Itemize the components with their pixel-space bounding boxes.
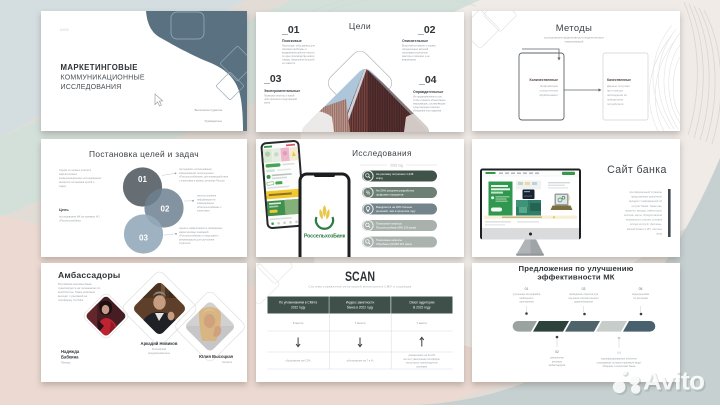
svg-text:Одним из первых этапов в: Одним из первых этапов в (59, 168, 92, 172)
svg-text:ипотека, карты. Предоставлена: ипотека, карты. Предоставлена (624, 213, 663, 217)
svg-text:при помощи: при помощи (607, 89, 623, 93)
svg-text:Российский: Российский (152, 347, 167, 351)
svg-text:связи: связи (264, 102, 271, 105)
svg-text:обогатившие на 7 в %: обогатившие на 7 в % (347, 359, 374, 363)
svg-text:исходя из групп: физлицы,: исходя из групп: физлицы, (630, 222, 662, 226)
svg-text:Россельхозбанк (845 105 раза): Россельхозбанк (845 105 раза) (376, 226, 416, 230)
svg-text:Певица: Певица (61, 361, 71, 365)
svg-text:7 место: 7 место (416, 321, 427, 325)
svg-text:стратегии: стратегии (179, 242, 191, 245)
svg-text:маркетинговых кампаний: маркетинговых кампаний (179, 231, 209, 234)
svg-text:маркетинговых: маркетинговых (59, 173, 78, 176)
svg-text:Оправдательные: Оправдательные (413, 90, 443, 94)
svg-text:решений, чем в прошлом году: решений, чем в прошлом году (376, 209, 416, 213)
svg-text:ИССЛЕДОВАНИЯ: ИССЛЕДОВАНИЯ (61, 84, 122, 91)
svg-text:Система управления репутацией: Система управления репутацией мониторинг… (308, 285, 411, 289)
svg-text:коммуникационных исследованиях: коммуникационных исследованиях (59, 177, 102, 180)
svg-text:Охват аудитории: Охват аудитории (409, 301, 434, 305)
svg-text:МАРКЕТИНГОВЫЕ: МАРКЕТИНГОВЫЕ (61, 63, 138, 72)
svg-text:Аркадий Новиков: Аркадий Новиков (141, 341, 178, 346)
svg-text:реклама: реклама (417, 365, 428, 368)
svg-text:информации на: информации на (197, 198, 216, 201)
svg-text:01: 01 (138, 175, 147, 184)
svg-text:выходит с рекламой на: выходит с рекламой на (58, 294, 88, 298)
svg-text:транслируется на телеканалах п: транслируется на телеканалах по (58, 287, 101, 290)
svg-text:Российская реклама банка: Российская реклама банка (58, 282, 92, 286)
svg-text:Поисковые: Поисковые (282, 39, 302, 43)
svg-text:Количественные: Количественные (530, 78, 559, 82)
svg-text:04: 04 (617, 351, 621, 355)
svg-text:уменьшение на 41,6%: уменьшение на 41,6% (408, 353, 435, 357)
svg-text:улучшение интерфейса: улучшение интерфейса (513, 293, 541, 296)
svg-text:Данные получают: Данные получают (607, 84, 631, 88)
svg-text:исследование МК на примере АО: исследование МК на примере АО (59, 215, 100, 219)
svg-text:2022 год: 2022 год (390, 163, 403, 167)
svg-text:_04: _04 (418, 74, 437, 86)
svg-text:предприниматель: предприниматель (148, 352, 171, 355)
svg-text:платформу YouTube: платформу YouTube (58, 298, 84, 302)
svg-text:эффективности МК: эффективности МК (537, 273, 614, 282)
svg-text:6 место: 6 место (293, 321, 304, 325)
svg-text:В 2022 году: В 2022 году (413, 305, 431, 309)
svg-text:банка в 2022 году: банка в 2022 году (347, 305, 374, 309)
svg-text:исследовать использование: исследовать использование (179, 168, 212, 171)
svg-text:Бабкина: Бабкина (61, 354, 79, 359)
svg-text:услугах банка. Также как,: услугах банка. Также как, (631, 204, 662, 208)
svg-text:«Россельхозбанком» для взаимод: «Россельхозбанком» для взаимодействия (179, 176, 229, 179)
svg-text:удовлетворения: удовлетворения (574, 301, 593, 304)
svg-text:коммуникаций: коммуникаций (565, 40, 584, 44)
svg-text:Цели: Цели (349, 21, 371, 31)
svg-text:убеждения или суждения: убеждения или суждения (413, 110, 442, 113)
svg-text:кредиты, вклады, инвестиции,: кредиты, вклады, инвестиции, (626, 209, 663, 212)
svg-text:Предложения по улучшению: Предложения по улучшению (519, 264, 634, 273)
svg-text:SCAN: SCAN (345, 269, 375, 284)
svg-text:01: 01 (525, 287, 529, 291)
svg-text:изучить влияние: изучить влияние (197, 195, 217, 198)
svg-text:коммуникации: коммуникации (197, 202, 214, 205)
svg-text:статистически: статистически (540, 89, 559, 93)
svg-text:Цель: Цель (59, 208, 69, 212)
svg-text:возможность изучать условия: возможность изучать условия (626, 219, 663, 222)
svg-text:Качественные: Качественные (607, 78, 631, 82)
svg-text:КОММУНИКАЦИОННЫЕ: КОММУНИКАЦИОННЫЕ (61, 75, 145, 82)
svg-text:Методы: Методы (556, 22, 593, 33)
svg-text:Avito: Avito (643, 366, 705, 396)
svg-text:РоссельхозБанк: РоссельхозБанк (304, 234, 346, 240)
svg-text:«Россельхозбанк»: «Россельхозбанк» (59, 219, 82, 223)
svg-text:с клиентами в разных регионах: с клиентами в разных регионах России (179, 179, 225, 182)
svg-text:ооо: ооо (60, 27, 69, 32)
svg-text:поведением: поведением (607, 98, 623, 102)
svg-text:Руководитель: Руководитель (205, 119, 223, 123)
svg-text:амбассадоров: амбассадоров (549, 364, 566, 367)
svg-text:наблюдения за: наблюдения за (607, 93, 627, 97)
svg-text:на которых транслируется: на которых транслируется (406, 362, 438, 365)
svg-text:его самости: его самости (282, 62, 296, 65)
svg-text:По упоминаниям в СМИ в: По упоминаниям в СМИ в (279, 301, 318, 305)
svg-text:рекламы: рекламы (552, 360, 562, 363)
svg-text:сбросившие на 0,3%: сбросившие на 0,3% (286, 359, 312, 363)
svg-text:Сбербанк (29 903 115 раза): Сбербанк (29 903 115 раза) (376, 242, 412, 246)
svg-text:03: 03 (582, 287, 586, 291)
svg-text:проведение опросов для: проведение опросов для (569, 293, 599, 296)
svg-text:«Россельхозбанка» с: «Россельхозбанка» с (197, 206, 222, 209)
svg-text:цифровых продуктов: цифровых продуктов (376, 193, 404, 197)
svg-text:мобильного: мобильного (520, 297, 534, 300)
svg-text:_01: _01 (281, 24, 300, 36)
svg-text:является постановка целей и: является постановка целей и (59, 180, 95, 184)
svg-text:%: % (366, 190, 371, 196)
svg-text:за счет увеличения платформ,: за счет увеличения платформ, (403, 357, 440, 361)
svg-text:2022 году: 2022 году (291, 305, 306, 309)
svg-text:видеореклама: видеореклама (632, 293, 649, 296)
svg-text:взаимосвязь: взаимосвязь (402, 59, 417, 62)
svg-text:увеличение: увеличение (550, 357, 564, 360)
svg-text:всей России. Также компания: всей России. Также компания (58, 290, 96, 294)
svg-text:изучения покупательского: изучения покупательского (568, 297, 599, 300)
svg-text:Амбассадоры: Амбассадоры (58, 270, 120, 280)
svg-text:оценить эффективность проводим: оценить эффективность проводимых (179, 227, 223, 230)
svg-text:Сайт банка: Сайт банка (607, 164, 667, 176)
svg-text:представлены различные: представлены различные (631, 196, 663, 199)
svg-text:02: 02 (555, 350, 559, 354)
svg-text:05: 05 (639, 287, 643, 291)
svg-text:_02: _02 (417, 24, 436, 36)
svg-text:приложения: приложения (519, 301, 534, 304)
svg-text:потребителя: потребителя (607, 102, 624, 106)
svg-text:Надежда: Надежда (61, 349, 80, 354)
svg-text:На официальной странице: На официальной странице (630, 190, 663, 194)
svg-text:_03: _03 (263, 73, 282, 85)
svg-text:02: 02 (161, 205, 170, 214)
svg-text:рекомендации для улучшения: рекомендации для улучшения (179, 238, 215, 241)
svg-text:обрабатывают: обрабатывают (539, 93, 559, 97)
svg-text:млрд: млрд (376, 176, 383, 180)
svg-text:Индекс заметности: Индекс заметности (346, 301, 375, 305)
svg-text:7 место: 7 место (355, 321, 366, 325)
svg-text:Информацию: Информацию (540, 84, 558, 88)
svg-text:Описательные: Описательные (402, 39, 428, 43)
svg-text:вкладки с информацией об: вкладки с информацией об (629, 199, 662, 203)
svg-text:Экспериментальные: Экспериментальные (264, 89, 300, 93)
svg-text:лица: лица (656, 232, 662, 235)
svg-text:клиентами: клиентами (197, 210, 210, 213)
svg-text:Актриса: Актриса (222, 360, 233, 364)
svg-text:по регионам: по регионам (633, 297, 648, 300)
svg-text:Постановка целей и задач: Постановка целей и задач (89, 149, 199, 159)
svg-text:коммуникаций, используемых: коммуникаций, используемых (179, 172, 215, 175)
svg-text:«Россельхозбанка» и предложить: «Россельхозбанка» и предложить (179, 235, 219, 238)
svg-text:Исследования: Исследования (352, 149, 412, 158)
svg-text:Юлия Высоцкая: Юлия Высоцкая (199, 354, 234, 359)
svg-text:Выполнила студентка: Выполнила студентка (195, 108, 223, 112)
svg-text:03: 03 (139, 234, 148, 243)
svg-text:малый бизнес и ИП, частные: малый бизнес и ИП, частные (627, 227, 663, 231)
svg-text:задач.: задач. (59, 185, 67, 188)
